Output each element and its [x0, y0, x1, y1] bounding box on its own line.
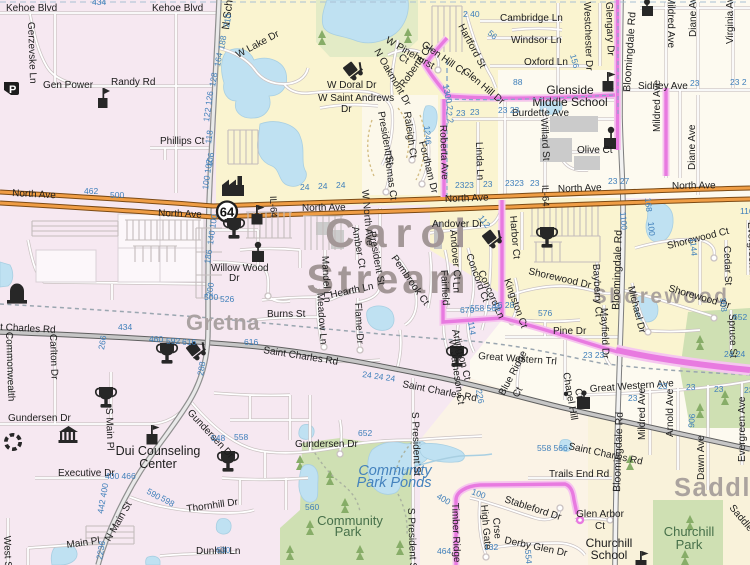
- svg-text:Phillips Ct: Phillips Ct: [160, 136, 205, 147]
- svg-text:Evergreen Ave: Evergreen Ave: [737, 396, 748, 462]
- svg-text:88: 88: [513, 77, 523, 87]
- svg-text:Olive Ct: Olive Ct: [577, 145, 613, 156]
- svg-text:Gretna: Gretna: [186, 310, 260, 335]
- svg-text:S Main Pl: S Main Pl: [103, 408, 115, 451]
- svg-text:23: 23: [690, 78, 700, 88]
- svg-text:Fairfield: Fairfield: [438, 270, 451, 306]
- svg-text:Arnold Ave: Arnold Ave: [665, 388, 676, 437]
- svg-text:Sidney Ave: Sidney Ave: [638, 81, 688, 92]
- svg-text:West St: West St: [1, 536, 13, 565]
- svg-text:School: School: [591, 548, 628, 562]
- svg-text:652: 652: [358, 428, 372, 438]
- svg-text:186: 186: [202, 249, 214, 265]
- svg-text:W Doral Dr: W Doral Dr: [327, 80, 377, 91]
- svg-text:Gerzevske Ln: Gerzevske Ln: [25, 22, 38, 84]
- svg-text:23: 23: [714, 384, 724, 394]
- svg-text:Saddlebro: Saddlebro: [674, 474, 750, 502]
- svg-text:554: 554: [523, 549, 534, 564]
- svg-text:Cambridge Ln: Cambridge Ln: [500, 13, 563, 24]
- svg-text:Willard St: Willard St: [538, 118, 551, 162]
- svg-text:526: 526: [220, 294, 234, 304]
- svg-text:Mildred Ave: Mildred Ave: [637, 387, 648, 440]
- svg-text:24: 24: [336, 180, 346, 190]
- svg-text:North Ave: North Ave: [302, 202, 346, 214]
- svg-text:Virginia Ave: Virginia Ave: [725, 0, 736, 44]
- svg-text:Diane Ave: Diane Ave: [688, 0, 699, 37]
- svg-text:560: 560: [305, 502, 319, 512]
- svg-text:Gundersen Dr: Gundersen Dr: [8, 413, 71, 424]
- svg-text:132: 132: [484, 542, 498, 552]
- svg-text:Glen Arbor: Glen Arbor: [576, 509, 624, 520]
- svg-text:P: P: [9, 84, 16, 96]
- svg-text:24: 24: [300, 182, 310, 192]
- svg-text:Ln: Ln: [450, 282, 462, 294]
- svg-text:23: 23: [628, 393, 638, 403]
- svg-text:Dr: Dr: [229, 273, 240, 284]
- svg-text:558 566: 558 566: [537, 443, 568, 453]
- svg-text:Diane Ave: Diane Ave: [687, 124, 698, 170]
- svg-text:616: 616: [182, 337, 196, 347]
- svg-text:24: 24: [318, 181, 328, 191]
- svg-text:S President St: S President St: [409, 412, 422, 476]
- svg-text:Linda Ln: Linda Ln: [473, 142, 485, 181]
- svg-text:Mildred Ave: Mildred Ave: [652, 79, 663, 132]
- svg-text:616: 616: [244, 337, 258, 347]
- svg-text:168: 168: [643, 197, 654, 212]
- svg-text:North Ave: North Ave: [12, 188, 57, 201]
- svg-text:24 24: 24 24: [724, 349, 746, 359]
- svg-text:23 23: 23 23: [498, 105, 520, 115]
- svg-text:S President St: S President St: [405, 508, 418, 565]
- svg-text:Windsor Ln: Windsor Ln: [511, 35, 562, 46]
- svg-text:Dawn Ave: Dawn Ave: [696, 435, 707, 480]
- svg-text:Gundersen Dr: Gundersen Dr: [295, 439, 358, 450]
- svg-text:Park: Park: [335, 524, 362, 539]
- svg-text:Trails End Rd: Trails End Rd: [549, 469, 609, 480]
- svg-text:200: 200: [204, 282, 216, 298]
- svg-text:23: 23: [686, 382, 696, 392]
- svg-text:100: 100: [646, 221, 657, 236]
- svg-text:23: 23: [658, 381, 668, 391]
- svg-text:23: 23: [456, 108, 466, 118]
- svg-text:116: 116: [740, 206, 750, 216]
- svg-text:2323: 2323: [505, 178, 524, 188]
- svg-text:Burns St: Burns St: [267, 309, 306, 320]
- svg-text:23 23: 23 23: [583, 350, 605, 360]
- svg-text:118: 118: [203, 129, 215, 144]
- svg-text:576: 576: [538, 308, 552, 318]
- svg-text:434: 434: [92, 0, 106, 7]
- svg-text:460: 460: [149, 334, 163, 344]
- svg-text:Kehoe Blvd: Kehoe Blvd: [152, 3, 203, 14]
- svg-text:Park: Park: [676, 537, 703, 552]
- svg-text:906: 906: [686, 413, 697, 428]
- svg-text:558 566: 558 566: [470, 303, 501, 313]
- svg-text:23: 23: [470, 107, 480, 117]
- svg-text:Glengary Dr: Glengary Dr: [603, 2, 616, 57]
- svg-text:Dui Counseling: Dui Counseling: [116, 444, 201, 458]
- svg-text:Flame Dr: Flame Dr: [352, 303, 365, 345]
- svg-text:North Ave: North Ave: [558, 182, 603, 195]
- svg-text:Center: Center: [139, 457, 177, 471]
- svg-text:W Saint Andrews: W Saint Andrews: [318, 93, 394, 104]
- svg-text:IL-64: IL-64: [539, 185, 551, 207]
- svg-text:548: 548: [211, 433, 225, 443]
- svg-text:2 40: 2 40: [463, 9, 480, 19]
- svg-text:North Ave: North Ave: [672, 180, 716, 192]
- svg-text:464: 464: [437, 546, 451, 556]
- svg-text:Gen Power: Gen Power: [43, 80, 94, 91]
- svg-text:Pine Dr: Pine Dr: [553, 326, 587, 337]
- svg-text:23 2: 23 2: [730, 77, 747, 87]
- svg-text:Willow Wood: Willow Wood: [211, 263, 269, 274]
- svg-text:Kehoe Blvd: Kehoe Blvd: [6, 3, 57, 14]
- svg-text:Oxford Ln: Oxford Ln: [524, 57, 568, 68]
- svg-text:400 466: 400 466: [105, 471, 136, 481]
- svg-text:462: 462: [84, 186, 98, 196]
- svg-text:Roberta Ave: Roberta Ave: [437, 125, 450, 181]
- svg-text:630: 630: [216, 545, 230, 555]
- svg-text:2323: 2323: [455, 180, 474, 190]
- svg-text:2 2: 2 2: [444, 111, 456, 125]
- svg-text:Cedar St: Cedar St: [721, 246, 733, 286]
- svg-text:Park Ponds: Park Ponds: [357, 475, 432, 491]
- svg-text:Randy Rd: Randy Rd: [111, 77, 155, 88]
- svg-text:1144: 1144: [688, 237, 700, 256]
- svg-text:Mildred Ave: Mildred Ave: [665, 0, 676, 49]
- svg-text:Crse: Crse: [490, 517, 503, 539]
- svg-text:North Ave: North Ave: [445, 192, 490, 205]
- svg-text:23: 23: [744, 385, 750, 395]
- svg-text:23 27: 23 27: [608, 176, 630, 186]
- svg-text:64: 64: [220, 205, 235, 220]
- svg-text:IL-64: IL-64: [267, 196, 279, 218]
- svg-text:558: 558: [234, 432, 248, 442]
- svg-text:500: 500: [110, 190, 124, 200]
- svg-text:368: 368: [718, 297, 729, 312]
- svg-text:1100: 1100: [618, 211, 630, 230]
- svg-text:434: 434: [118, 322, 132, 332]
- svg-text:652: 652: [733, 312, 747, 322]
- svg-text:North Ave: North Ave: [158, 208, 203, 221]
- svg-text:23: 23: [530, 178, 540, 188]
- svg-text:23: 23: [483, 179, 493, 189]
- svg-text:1246: 1246: [422, 125, 434, 145]
- svg-text:Dr: Dr: [341, 104, 352, 115]
- svg-text:Carlton Dr: Carlton Dr: [47, 334, 60, 381]
- svg-text:592: 592: [166, 336, 180, 346]
- svg-text:Ct: Ct: [595, 521, 605, 532]
